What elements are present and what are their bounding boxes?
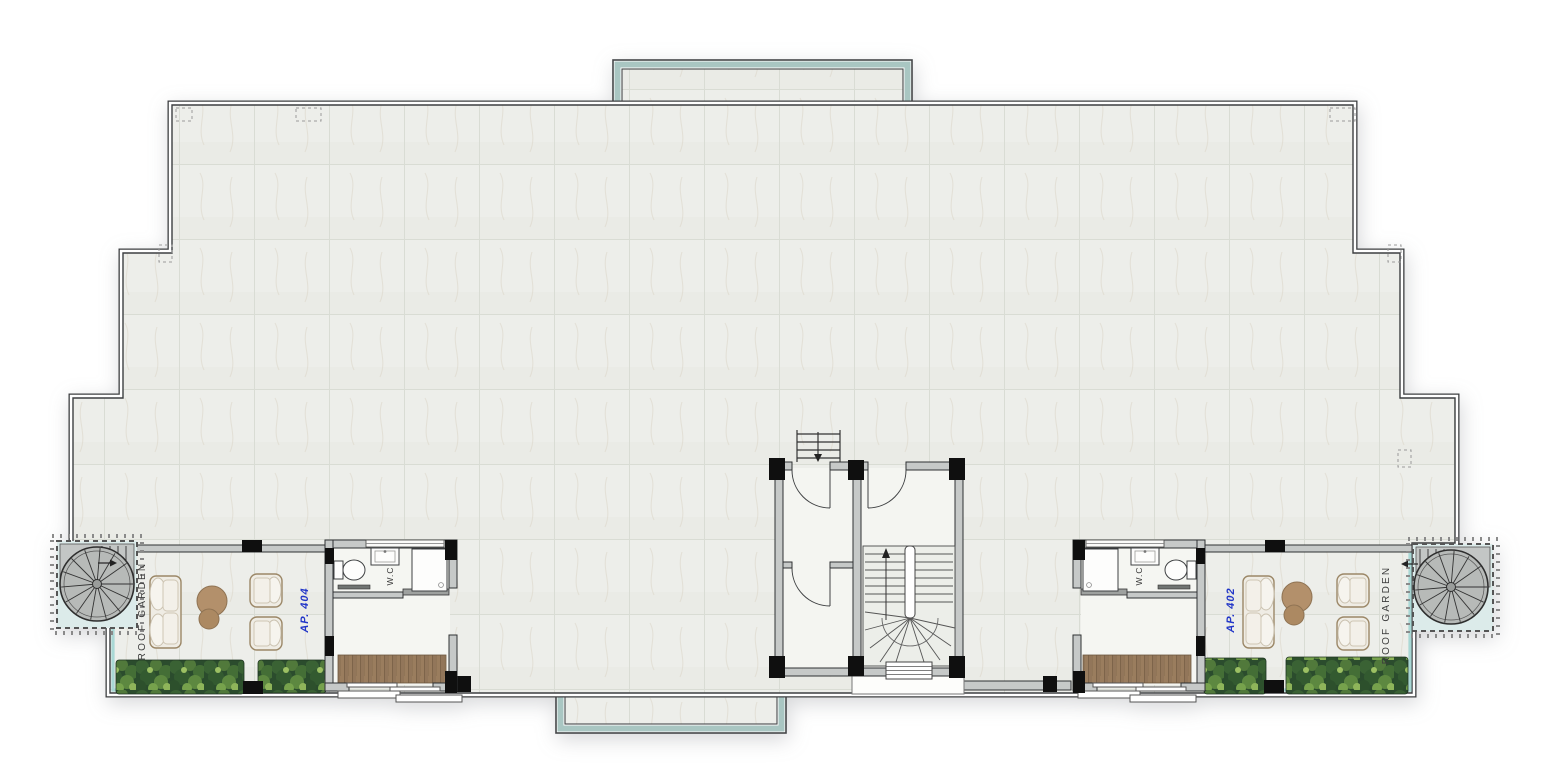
shower-fixture: [412, 549, 447, 591]
armchair-2: [1337, 617, 1369, 650]
armchair-2: [250, 617, 282, 650]
apartment-404-block: [325, 540, 462, 702]
label-wc-right: W.C: [1134, 566, 1144, 585]
wood-deck: [1083, 655, 1191, 683]
roof-garden-right-planters: [1204, 657, 1408, 694]
label-roof-garden-left: ROOF GARDEN: [137, 562, 148, 661]
sink-fixture: [1131, 548, 1159, 565]
roof-garden-left-planters: [116, 660, 326, 694]
wood-deck: [338, 655, 446, 683]
floor-plan-page: ROOF GARDEN ROOF GARDEN AP. 404 AP. 402 …: [0, 0, 1560, 769]
armchair-1: [250, 574, 282, 607]
stair-flight: [863, 546, 955, 666]
label-ap-404: AP. 404: [299, 587, 311, 633]
sink-fixture: [371, 548, 399, 565]
floor-plan-canvas: ROOF GARDEN ROOF GARDEN AP. 404 AP. 402 …: [0, 0, 1560, 769]
armchair-1: [1337, 574, 1369, 607]
toilet-fixture: [334, 560, 365, 580]
apartment-402-block: [1073, 540, 1205, 702]
shower-fixture: [1083, 549, 1118, 591]
sofa: [1243, 576, 1274, 648]
sofa: [150, 576, 181, 648]
spiral-stair-right: [1401, 539, 1498, 636]
stair-window: [886, 662, 932, 679]
toilet-fixture: [1165, 560, 1196, 580]
label-ap-402: AP. 402: [1225, 587, 1237, 633]
stair-core: [769, 458, 965, 694]
label-roof-garden-right: ROOF GARDEN: [1381, 566, 1392, 665]
spiral-stair-left: [52, 536, 142, 633]
label-wc-left: W.C: [385, 566, 395, 585]
